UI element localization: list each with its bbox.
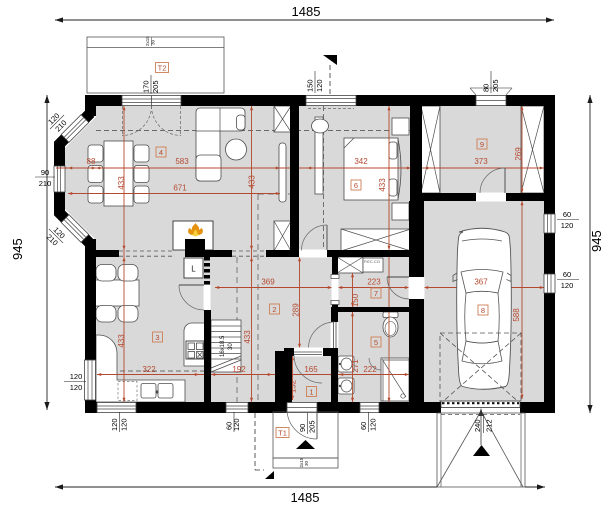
svg-text:289: 289 (292, 303, 301, 317)
svg-text:433: 433 (378, 178, 387, 192)
svg-text:2x15: 2x15 (145, 36, 150, 46)
svg-text:205: 205 (491, 79, 500, 92)
svg-text:170: 170 (142, 80, 151, 93)
svg-text:120: 120 (369, 418, 378, 431)
svg-text:205: 205 (308, 420, 317, 433)
svg-text:60: 60 (563, 270, 571, 279)
svg-text:271: 271 (351, 359, 360, 373)
svg-text:30: 30 (304, 460, 309, 466)
svg-text:120: 120 (110, 418, 119, 431)
svg-text:120: 120 (315, 79, 324, 92)
svg-text:322: 322 (142, 365, 156, 374)
svg-text:120: 120 (120, 418, 129, 431)
svg-text:90: 90 (298, 424, 307, 432)
svg-text:P.EC.CO: P.EC.CO (364, 259, 380, 264)
svg-text:192: 192 (232, 365, 246, 374)
svg-text:342: 342 (354, 157, 368, 166)
svg-text:120: 120 (561, 221, 574, 230)
svg-text:210: 210 (39, 179, 52, 188)
svg-text:60: 60 (563, 210, 571, 219)
svg-text:3: 3 (155, 333, 159, 342)
svg-text:90: 90 (41, 168, 49, 177)
svg-text:150: 150 (351, 293, 360, 307)
svg-text:945: 945 (10, 238, 25, 260)
svg-text:165: 165 (304, 365, 318, 374)
svg-text:433: 433 (117, 176, 126, 190)
svg-text:433: 433 (117, 334, 126, 348)
svg-text:212: 212 (485, 419, 494, 432)
svg-text:269: 269 (514, 147, 523, 161)
svg-text:583: 583 (175, 157, 189, 166)
svg-text:369: 369 (261, 278, 275, 287)
svg-text:1485: 1485 (291, 490, 320, 505)
svg-text:671: 671 (173, 184, 187, 193)
svg-text:1: 1 (309, 388, 313, 397)
svg-text:588: 588 (512, 308, 521, 322)
svg-text:4: 4 (159, 148, 163, 157)
svg-text:945: 945 (589, 230, 604, 252)
svg-text:60: 60 (359, 422, 368, 430)
svg-text:433: 433 (243, 330, 252, 344)
svg-text:88: 88 (87, 157, 96, 166)
svg-text:2: 2 (272, 305, 276, 314)
svg-text:240: 240 (473, 419, 482, 432)
svg-text:120: 120 (70, 372, 83, 381)
svg-text:T2: T2 (158, 64, 167, 73)
svg-text:367: 367 (474, 278, 488, 287)
svg-text:6: 6 (354, 181, 358, 190)
svg-text:150: 150 (306, 79, 315, 92)
svg-text:120: 120 (70, 383, 83, 392)
svg-text:433: 433 (248, 175, 257, 189)
svg-text:120: 120 (561, 281, 574, 290)
svg-text:5: 5 (374, 338, 378, 347)
svg-text:16x18.5: 16x18.5 (220, 335, 226, 357)
svg-text:120: 120 (232, 418, 241, 431)
svg-text:1485: 1485 (292, 4, 321, 19)
svg-text:T1: T1 (278, 429, 287, 438)
svg-text:30: 30 (228, 343, 234, 350)
svg-text:8: 8 (481, 306, 485, 315)
svg-text:80: 80 (482, 84, 491, 92)
svg-text:7: 7 (374, 289, 378, 298)
svg-text:L: L (191, 265, 196, 274)
svg-text:222: 222 (363, 365, 377, 374)
svg-text:9: 9 (480, 140, 484, 149)
svg-text:205: 205 (151, 80, 160, 93)
svg-text:223: 223 (367, 278, 381, 287)
svg-text:373: 373 (474, 157, 488, 166)
